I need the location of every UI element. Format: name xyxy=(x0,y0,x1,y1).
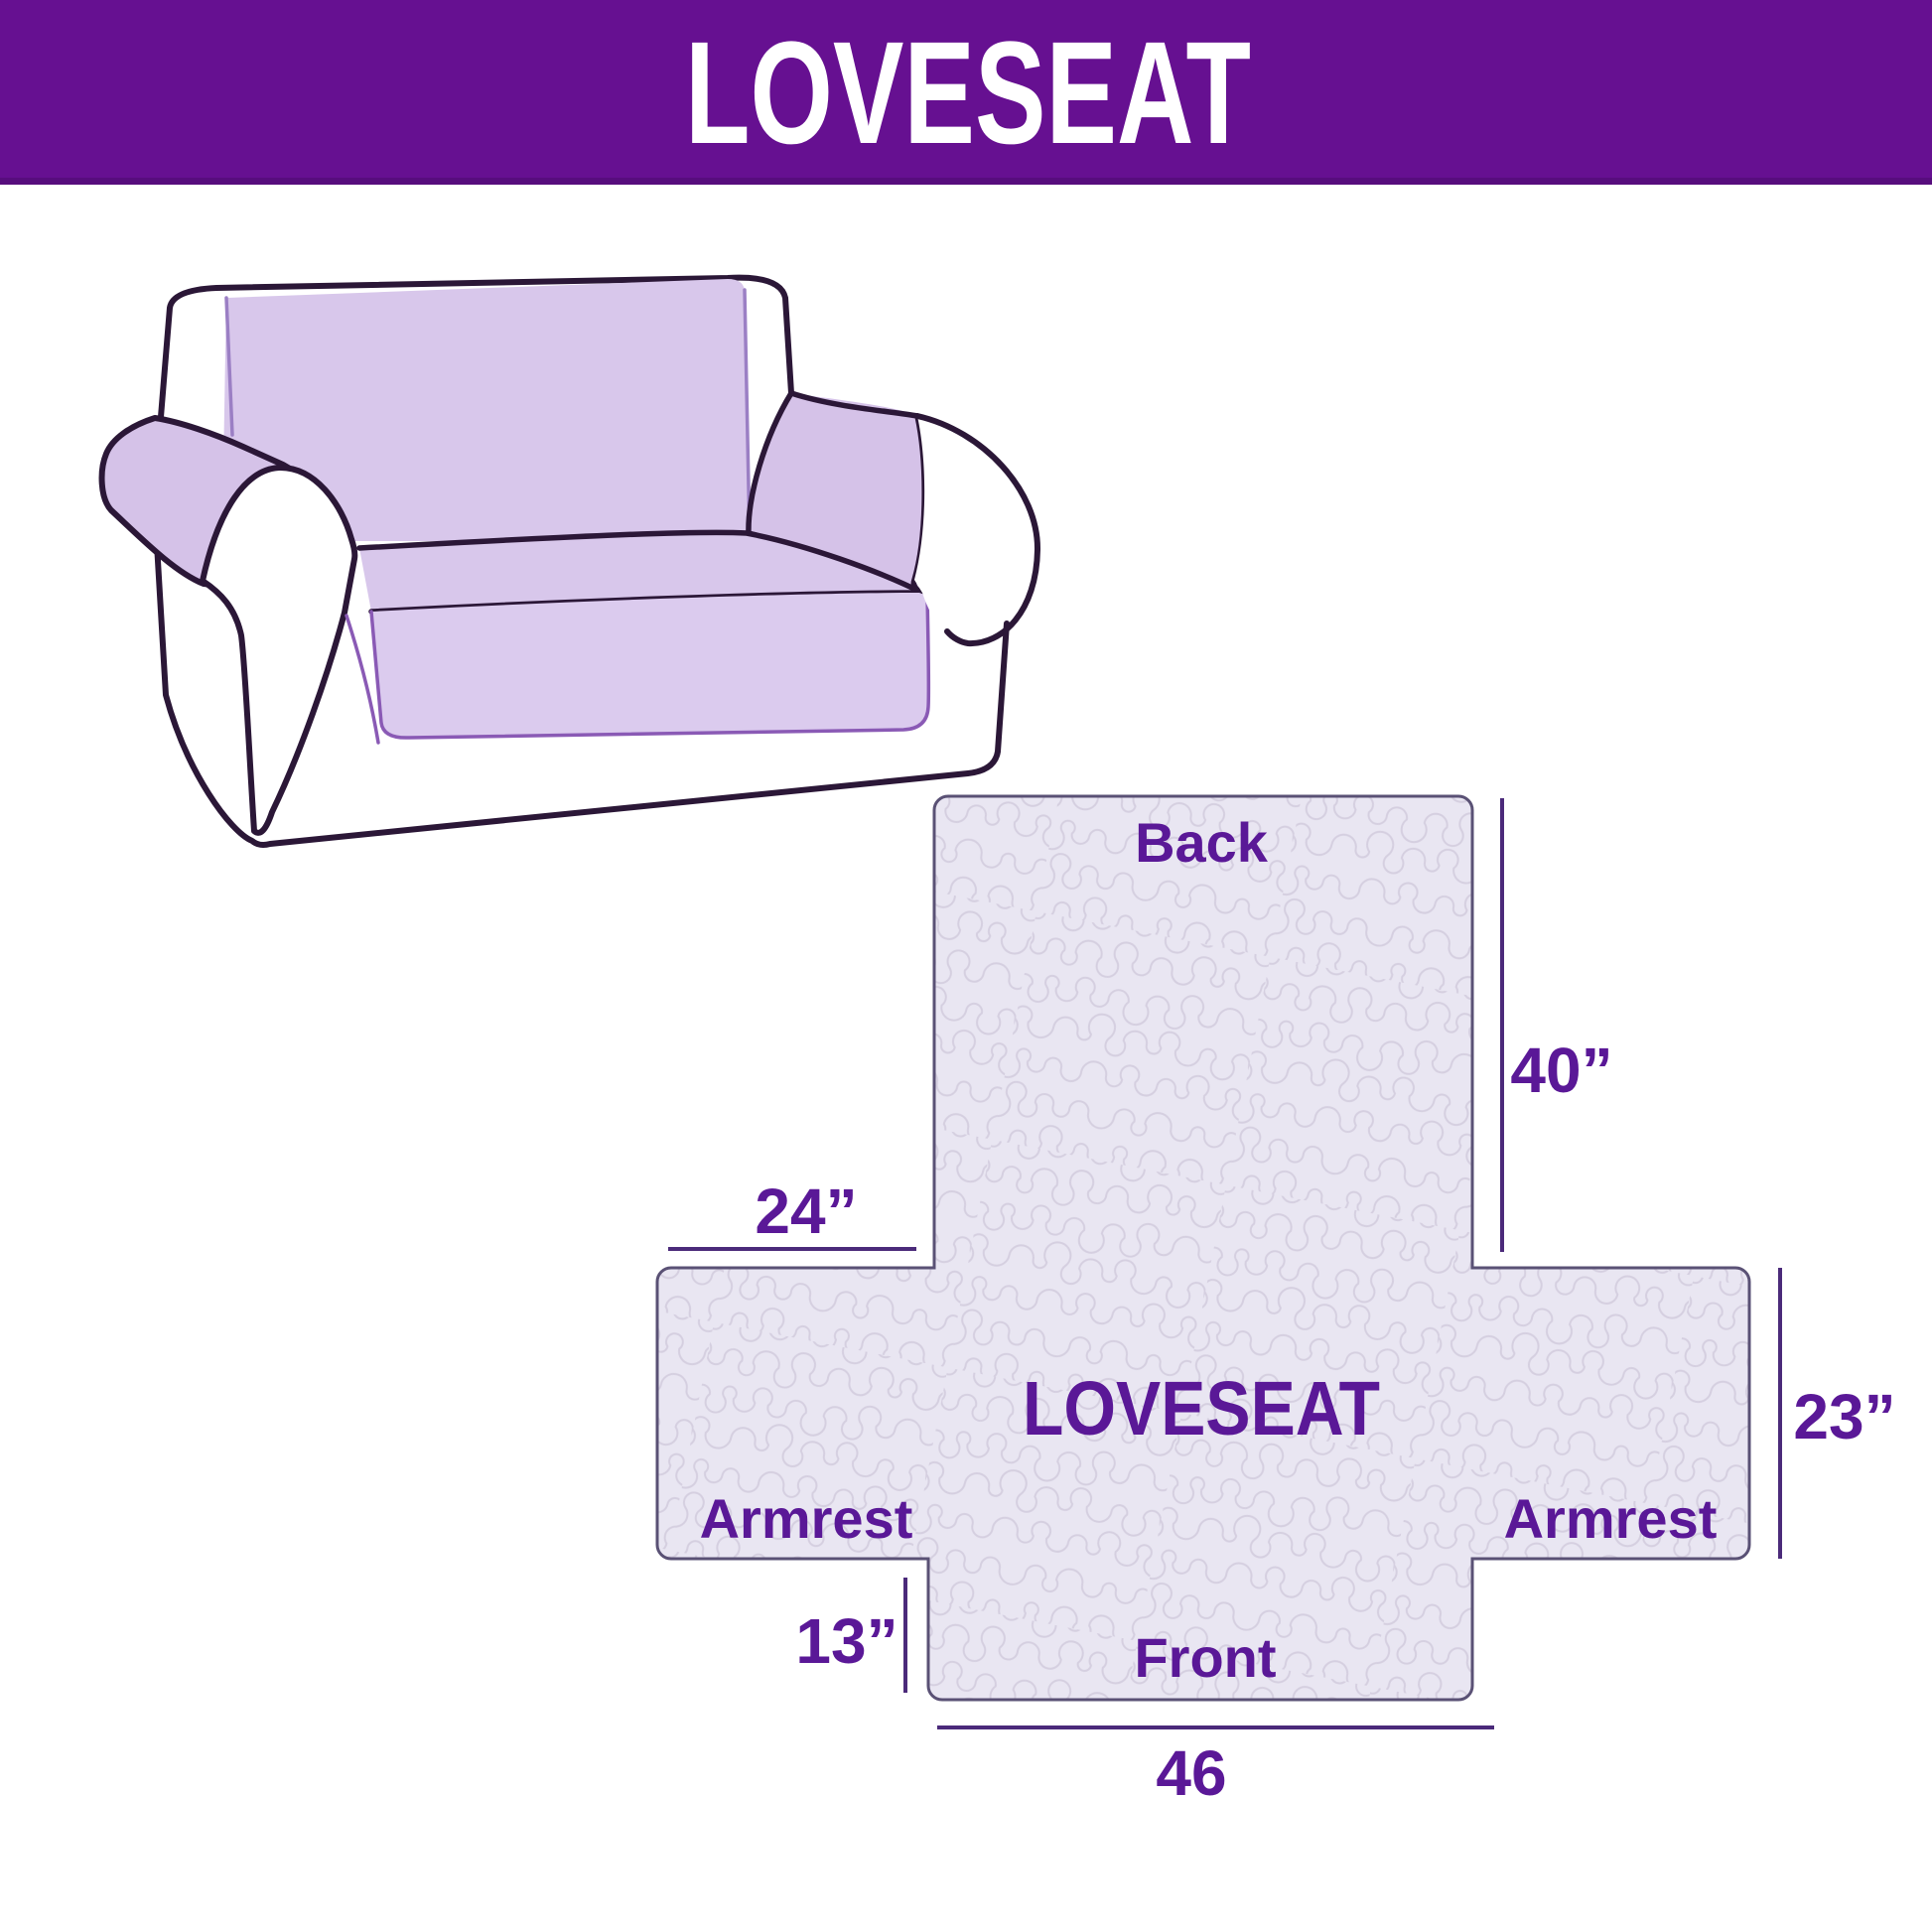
svg-text:40”: 40” xyxy=(1510,1035,1612,1106)
svg-text:Armrest: Armrest xyxy=(700,1487,913,1550)
svg-text:13”: 13” xyxy=(795,1605,897,1677)
svg-text:Armrest: Armrest xyxy=(1504,1487,1718,1550)
svg-text:46: 46 xyxy=(1156,1737,1226,1809)
svg-text:Front: Front xyxy=(1134,1626,1276,1689)
svg-text:24”: 24” xyxy=(755,1175,857,1247)
svg-text:23”: 23” xyxy=(1793,1381,1895,1452)
svg-text:LOVESEAT: LOVESEAT xyxy=(685,12,1251,175)
svg-text:Back: Back xyxy=(1135,811,1269,874)
svg-text:LOVESEAT: LOVESEAT xyxy=(1023,1366,1380,1451)
